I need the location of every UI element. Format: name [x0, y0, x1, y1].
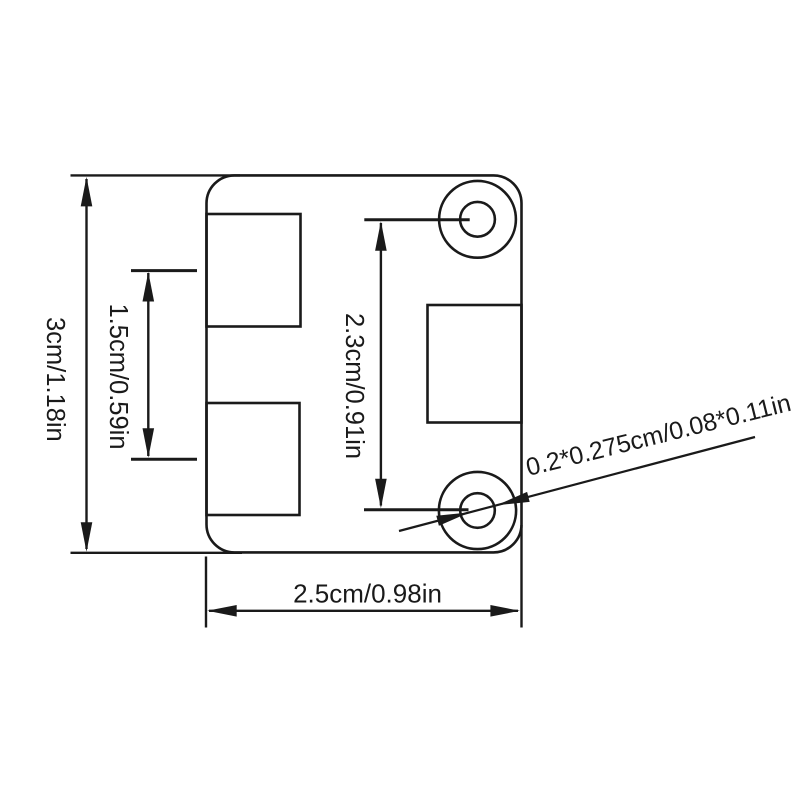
svg-text:3cm/1.18in: 3cm/1.18in — [41, 317, 69, 442]
svg-text:2.5cm/0.98in: 2.5cm/0.98in — [293, 579, 442, 609]
svg-text:1.5cm/0.59in: 1.5cm/0.59in — [104, 304, 132, 450]
svg-text:2.3cm/0.91in: 2.3cm/0.91in — [340, 313, 368, 459]
